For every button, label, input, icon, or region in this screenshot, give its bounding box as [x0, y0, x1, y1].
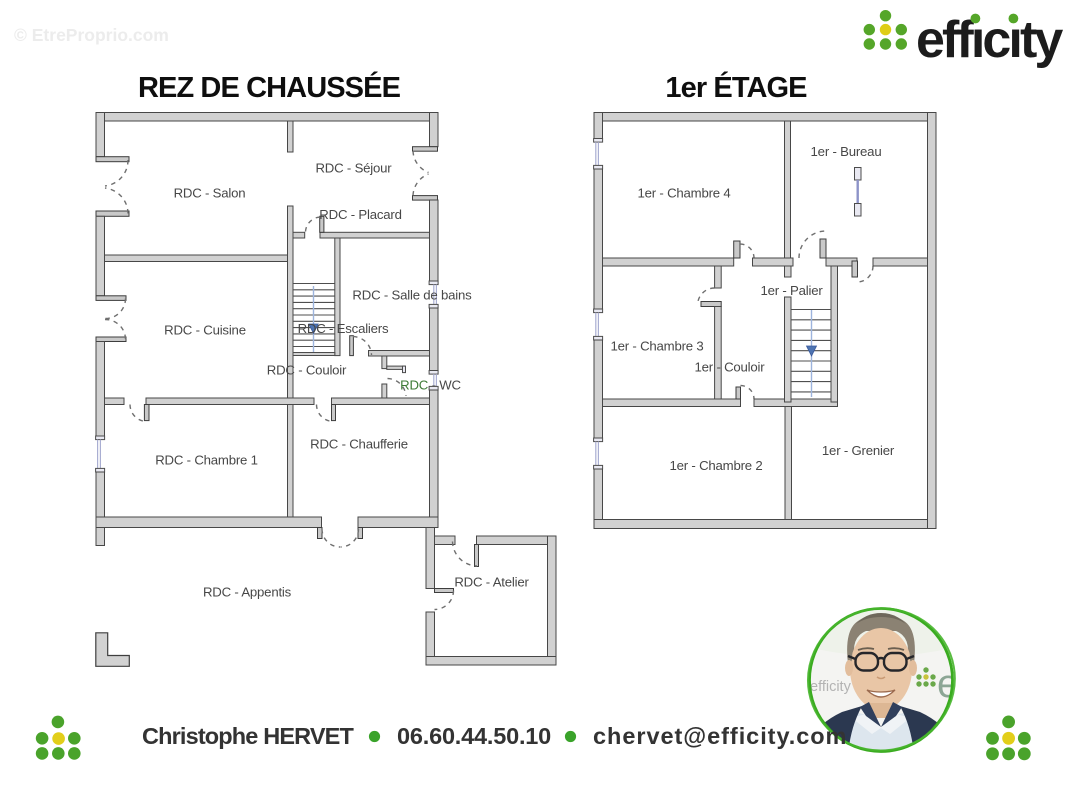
- svg-text:e: e: [937, 662, 959, 706]
- svg-text:1er - Chambre 3: 1er - Chambre 3: [610, 339, 703, 354]
- svg-text:RDC - Séjour: RDC - Séjour: [315, 161, 392, 176]
- svg-text:1er - Bureau: 1er - Bureau: [811, 144, 882, 159]
- svg-text:RDC - Atelier: RDC - Atelier: [454, 575, 529, 590]
- svg-text:RDC - Salle de bains: RDC - Salle de bains: [352, 288, 472, 303]
- svg-text:© EtreProprio.com: © EtreProprio.com: [14, 25, 169, 45]
- svg-text:RDC - Chambre 1: RDC - Chambre 1: [155, 453, 258, 468]
- svg-text:REZ DE CHAUSSÉE: REZ DE CHAUSSÉE: [138, 70, 401, 104]
- svg-text:1er - Grenier: 1er - Grenier: [822, 443, 895, 458]
- svg-text:1er ÉTAGE: 1er ÉTAGE: [665, 70, 807, 104]
- svg-text:1er - Chambre 2: 1er - Chambre 2: [669, 458, 762, 473]
- svg-text:Christophe HERVET: Christophe HERVET: [142, 723, 354, 749]
- svg-text:1er - Couloir: 1er - Couloir: [695, 360, 766, 375]
- svg-text:RDC - Cuisine: RDC - Cuisine: [164, 323, 246, 338]
- svg-text:chervet@efficity.com: chervet@efficity.com: [593, 723, 847, 749]
- svg-text:1er - Palier: 1er - Palier: [760, 283, 823, 298]
- svg-text:RDC - WC: RDC - WC: [400, 378, 461, 393]
- svg-text:06.60.44.50.10: 06.60.44.50.10: [397, 723, 551, 749]
- svg-text:RDC - Salon: RDC - Salon: [174, 186, 246, 201]
- svg-text:effıcıty: effıcıty: [916, 11, 1063, 69]
- svg-text:RDC - Placard: RDC - Placard: [319, 207, 401, 222]
- svg-text:RDC - Appentis: RDC - Appentis: [203, 585, 292, 600]
- svg-text:RDC - Chaufferie: RDC - Chaufferie: [310, 437, 408, 452]
- svg-text:RDC - Couloir: RDC - Couloir: [267, 363, 347, 378]
- svg-text:1er - Chambre 4: 1er - Chambre 4: [637, 186, 730, 201]
- svg-text:efficity: efficity: [810, 679, 852, 695]
- svg-text:RDC - Escaliers: RDC - Escaliers: [298, 321, 389, 336]
